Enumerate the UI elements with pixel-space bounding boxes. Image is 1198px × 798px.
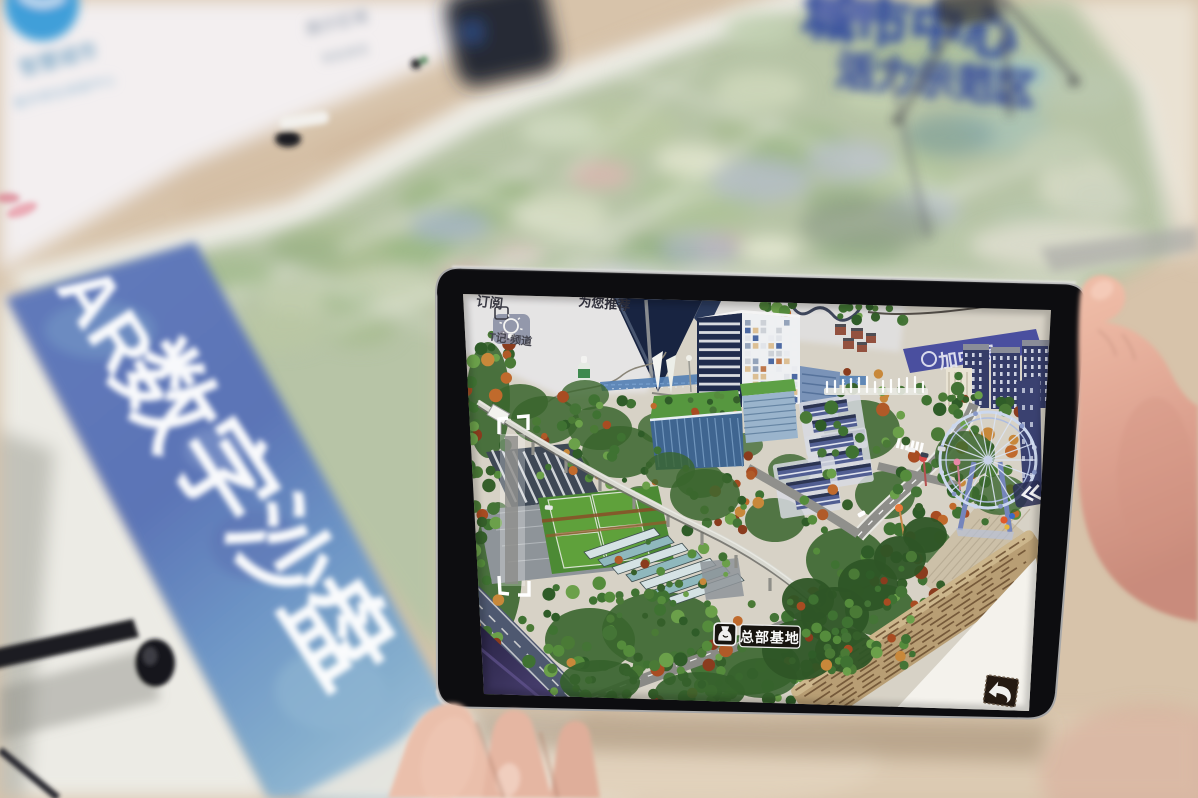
svg-text:总部基地: 总部基地 (740, 629, 800, 647)
